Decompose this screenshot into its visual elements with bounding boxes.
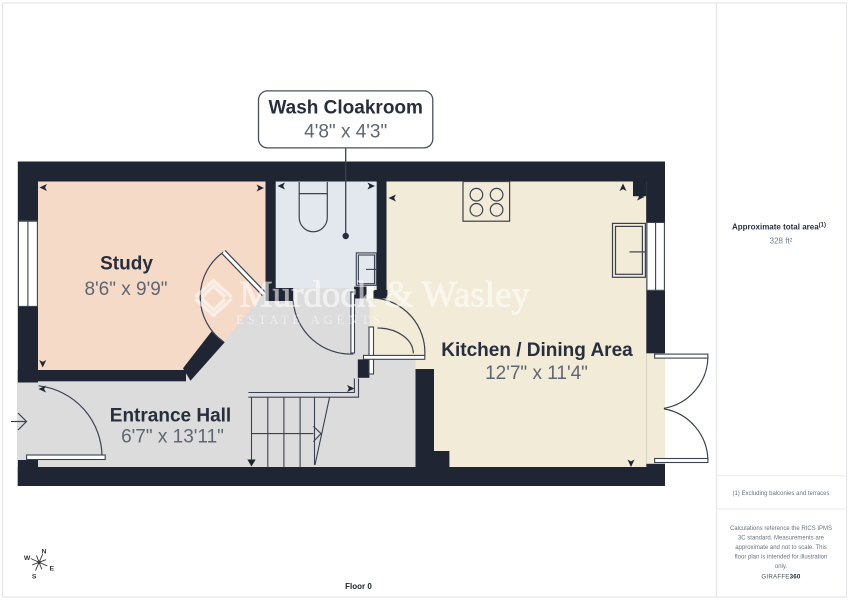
svg-text:12'7" x 11'4": 12'7" x 11'4" xyxy=(485,363,588,384)
svg-text:(1) Excluding balconies and te: (1) Excluding balconies and terraces xyxy=(732,491,829,497)
svg-text:W: W xyxy=(24,555,31,562)
svg-text:Murdock & Wasley: Murdock & Wasley xyxy=(240,275,531,316)
svg-text:4'8" x 4'3": 4'8" x 4'3" xyxy=(304,122,387,143)
svg-text:approximate and not to scale.: approximate and not to scale. This xyxy=(735,545,827,551)
svg-text:6'7" x 13'11": 6'7" x 13'11" xyxy=(121,427,224,448)
svg-text:Study: Study xyxy=(100,254,153,275)
svg-text:Entrance Hall: Entrance Hall xyxy=(110,406,231,427)
svg-text:Calculations reference the RIC: Calculations reference the RICS IPMS xyxy=(730,526,832,532)
svg-text:Kitchen / Dining Area: Kitchen / Dining Area xyxy=(441,340,633,361)
svg-text:only.: only. xyxy=(775,564,788,570)
svg-text:328 ft²: 328 ft² xyxy=(770,237,793,246)
svg-text:3C standard. Measurements are: 3C standard. Measurements are xyxy=(738,536,825,542)
svg-text:Wash Cloakroom: Wash Cloakroom xyxy=(268,98,423,119)
svg-text:N: N xyxy=(41,548,46,555)
svg-text:Approximate total area(1): Approximate total area(1) xyxy=(732,223,826,232)
svg-text:E: E xyxy=(50,566,55,573)
svg-text:8'6" x 9'9": 8'6" x 9'9" xyxy=(84,279,167,300)
svg-text:floor plan is intended for ill: floor plan is intended for illustration xyxy=(735,555,828,561)
svg-text:Floor 0: Floor 0 xyxy=(345,582,372,591)
svg-text:ESTATE AGENTS: ESTATE AGENTS xyxy=(236,313,384,327)
svg-text:S: S xyxy=(32,573,37,580)
svg-text:GIRAFFE360: GIRAFFE360 xyxy=(761,574,801,581)
